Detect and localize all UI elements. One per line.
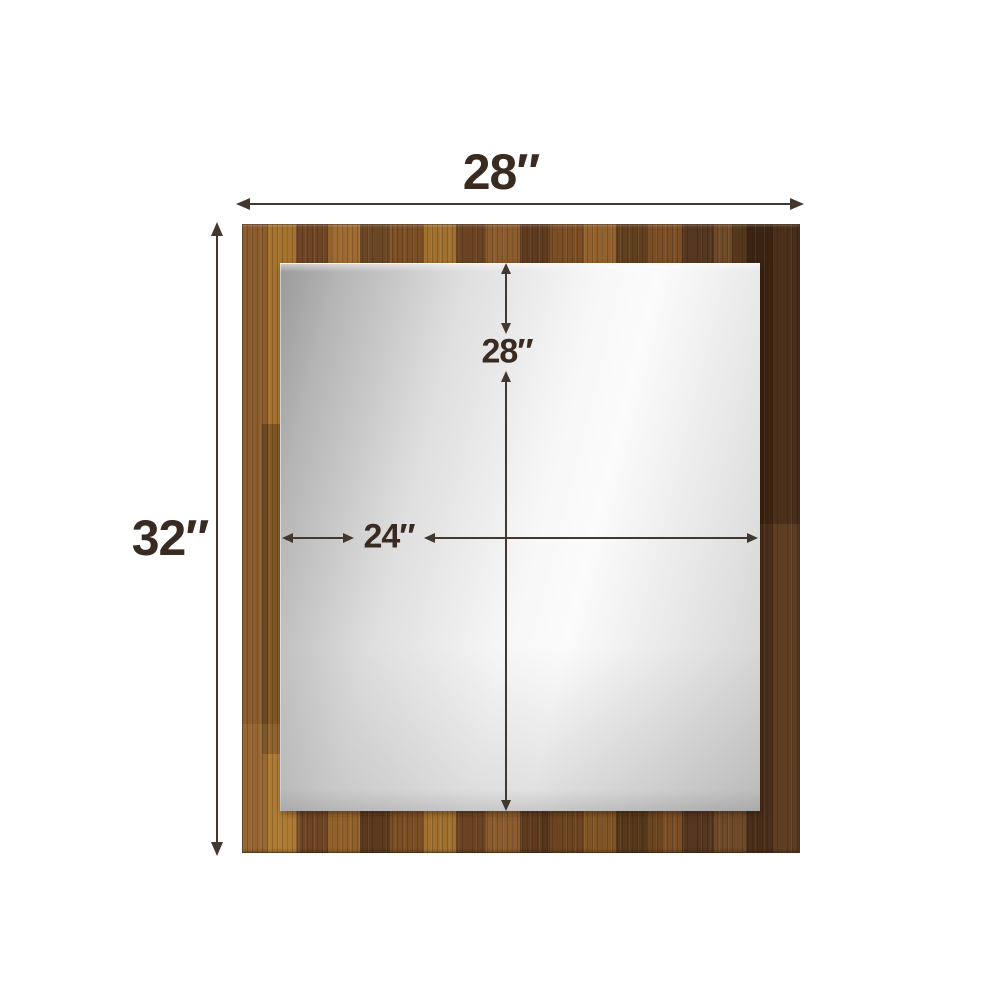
overall-width-dimension-line — [247, 203, 793, 205]
arrow-down-icon — [501, 800, 511, 811]
arrow-left-icon — [236, 198, 250, 210]
arrow-up-icon — [501, 263, 511, 274]
overall-height-label: 32″ — [132, 509, 209, 567]
mirror-height-dimension-line-upper — [505, 272, 507, 326]
arrow-right-icon — [790, 198, 804, 210]
diagram-canvas: 28″ 32″ 28″ 24″ — [0, 0, 1000, 1000]
arrow-right-icon — [747, 533, 758, 543]
arrow-down-icon — [211, 842, 223, 856]
mirror-height-label: 28″ — [481, 333, 532, 372]
arrow-up-icon — [211, 222, 223, 236]
arrow-left-icon — [424, 533, 435, 543]
mirror-width-label: 24″ — [363, 518, 414, 557]
mirror-height-dimension-line-lower — [505, 380, 507, 802]
arrow-left-icon — [282, 533, 293, 543]
mirror-width-dimension-line-left — [291, 537, 345, 539]
arrow-up-icon — [501, 371, 511, 382]
mirror-width-dimension-line-right — [433, 537, 749, 539]
overall-height-dimension-line — [216, 230, 218, 848]
arrow-right-icon — [343, 533, 354, 543]
overall-width-label: 28″ — [463, 143, 540, 201]
